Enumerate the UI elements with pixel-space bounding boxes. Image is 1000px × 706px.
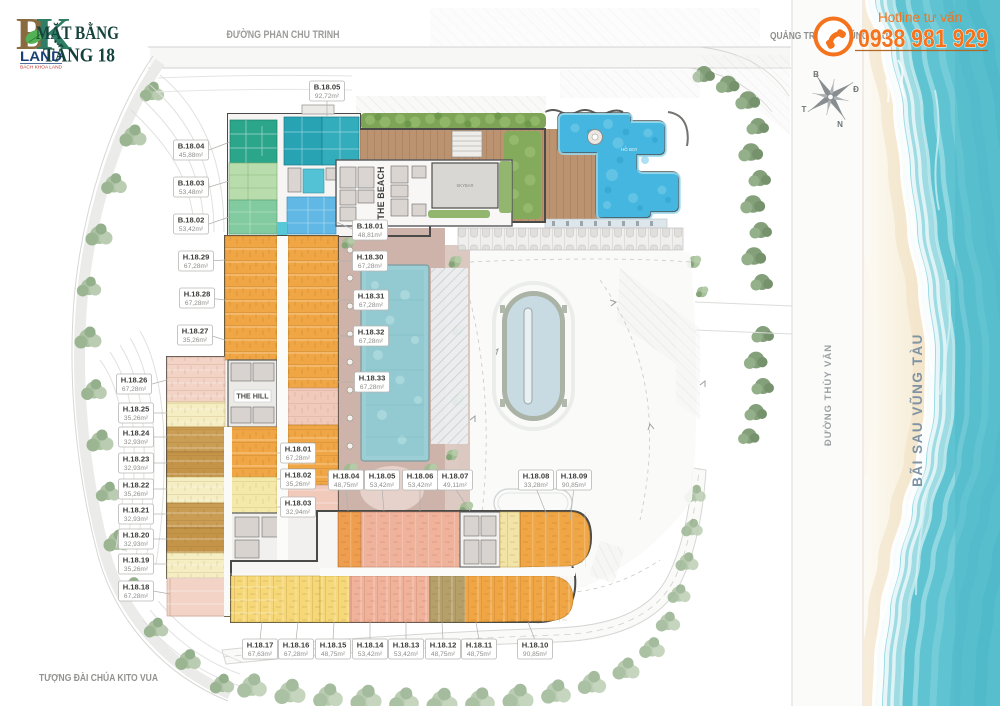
svg-text:32,93m²: 32,93m² xyxy=(124,465,149,472)
svg-text:H.18.17: H.18.17 xyxy=(247,641,274,650)
svg-text:B.18.04: B.18.04 xyxy=(178,142,205,151)
svg-text:H.18.31: H.18.31 xyxy=(358,292,385,301)
svg-text:H.18.13: H.18.13 xyxy=(393,641,420,650)
svg-text:H.18.30: H.18.30 xyxy=(357,253,384,262)
svg-text:32,93m²: 32,93m² xyxy=(124,439,149,446)
svg-text:H.18.26: H.18.26 xyxy=(121,376,148,385)
svg-text:90,85m²: 90,85m² xyxy=(523,651,548,658)
svg-text:48,75m²: 48,75m² xyxy=(431,651,456,658)
svg-text:0938 981 929: 0938 981 929 xyxy=(858,25,988,53)
svg-text:B.18.05: B.18.05 xyxy=(314,83,341,92)
svg-text:67,28m²: 67,28m² xyxy=(358,263,383,270)
svg-text:Đ: Đ xyxy=(853,85,859,94)
svg-text:BÃI SAU VŨNG TÀU: BÃI SAU VŨNG TÀU xyxy=(910,333,925,487)
svg-text:TƯỢNG ĐÀI CHÚA KITO VUA: TƯỢNG ĐÀI CHÚA KITO VUA xyxy=(39,671,158,684)
svg-text:H.18.16: H.18.16 xyxy=(283,641,310,650)
svg-text:32,93m²: 32,93m² xyxy=(124,516,149,523)
svg-text:67,63m²: 67,63m² xyxy=(248,651,273,658)
svg-text:H.18.14: H.18.14 xyxy=(357,641,384,650)
svg-text:35,26m²: 35,26m² xyxy=(124,566,149,573)
svg-text:H.18.10: H.18.10 xyxy=(522,641,549,650)
svg-text:H.18.01: H.18.01 xyxy=(285,445,312,454)
svg-text:H.18.32: H.18.32 xyxy=(358,328,385,337)
svg-text:N: N xyxy=(837,120,843,129)
svg-text:H.18.08: H.18.08 xyxy=(523,472,550,481)
svg-text:H.18.33: H.18.33 xyxy=(359,374,386,383)
svg-text:67,28m²: 67,28m² xyxy=(124,593,149,600)
svg-text:48,75m²: 48,75m² xyxy=(321,651,346,658)
svg-text:B.18.03: B.18.03 xyxy=(178,179,205,188)
svg-text:35,26m²: 35,26m² xyxy=(183,337,208,344)
svg-text:67,28m²: 67,28m² xyxy=(184,263,209,270)
svg-text:48,81m²: 48,81m² xyxy=(358,232,383,239)
svg-text:H.18.25: H.18.25 xyxy=(123,405,150,414)
svg-text:67,28m²: 67,28m² xyxy=(360,384,385,391)
svg-text:49,11m²: 49,11m² xyxy=(443,482,468,489)
svg-text:H.18.23: H.18.23 xyxy=(123,455,150,464)
svg-text:H.18.15: H.18.15 xyxy=(320,641,347,650)
svg-text:90,85m²: 90,85m² xyxy=(562,482,587,489)
svg-text:53,42m²: 53,42m² xyxy=(394,651,419,658)
svg-text:H.18.06: H.18.06 xyxy=(407,472,434,481)
svg-text:32,93m²: 32,93m² xyxy=(124,541,149,548)
svg-text:H.18.05: H.18.05 xyxy=(369,472,396,481)
svg-text:35,26m²: 35,26m² xyxy=(286,481,311,488)
svg-text:Hotline tư vấn: Hotline tư vấn xyxy=(878,10,962,25)
svg-text:MẶT BẰNG: MẶT BẰNG xyxy=(36,22,119,44)
svg-text:33,28m²: 33,28m² xyxy=(524,482,549,489)
svg-text:H.18.22: H.18.22 xyxy=(123,481,150,490)
svg-text:H.18.29: H.18.29 xyxy=(183,253,210,262)
svg-text:ĐƯỜNG PHAN CHU TRINH: ĐƯỜNG PHAN CHU TRINH xyxy=(227,28,340,41)
svg-text:ĐƯỜNG THÙY VÂN: ĐƯỜNG THÙY VÂN xyxy=(822,344,834,446)
svg-text:45,88m²: 45,88m² xyxy=(179,152,204,159)
svg-text:THE BEACH: THE BEACH xyxy=(376,166,386,219)
svg-text:32,94m²: 32,94m² xyxy=(286,509,311,516)
svg-text:T: T xyxy=(802,105,807,114)
svg-text:67,28m²: 67,28m² xyxy=(122,386,147,393)
svg-text:H.18.03: H.18.03 xyxy=(285,499,312,508)
svg-text:H.18.24: H.18.24 xyxy=(123,429,150,438)
svg-text:B: B xyxy=(813,70,819,79)
svg-text:35,26m²: 35,26m² xyxy=(124,415,149,422)
svg-text:HỒ BƠI: HỒ BƠI xyxy=(621,146,637,152)
svg-text:H.18.21: H.18.21 xyxy=(123,506,150,515)
svg-text:TẦNG 18: TẦNG 18 xyxy=(43,43,115,67)
svg-text:H.18.18: H.18.18 xyxy=(123,583,150,592)
svg-text:H.18.27: H.18.27 xyxy=(182,327,209,336)
svg-text:H.18.09: H.18.09 xyxy=(561,472,588,481)
svg-text:H.18.07: H.18.07 xyxy=(442,472,469,481)
svg-text:53,42m²: 53,42m² xyxy=(179,226,204,233)
svg-text:92,72m²: 92,72m² xyxy=(315,93,340,100)
svg-text:THE HILL: THE HILL xyxy=(236,392,269,401)
svg-text:H.18.28: H.18.28 xyxy=(184,290,211,299)
svg-text:H.18.12: H.18.12 xyxy=(430,641,457,650)
svg-text:H.18.11: H.18.11 xyxy=(466,641,493,650)
svg-text:67,28m²: 67,28m² xyxy=(284,651,309,658)
svg-text:48,75m²: 48,75m² xyxy=(467,651,492,658)
svg-text:48,75m²: 48,75m² xyxy=(334,482,359,489)
svg-text:67,28m²: 67,28m² xyxy=(286,455,311,462)
svg-text:H.18.20: H.18.20 xyxy=(123,531,150,540)
svg-text:35,26m²: 35,26m² xyxy=(124,491,149,498)
svg-text:53,42m²: 53,42m² xyxy=(370,482,395,489)
svg-text:B.18.02: B.18.02 xyxy=(178,216,205,225)
svg-text:67,28m²: 67,28m² xyxy=(185,300,210,307)
svg-text:H.18.04: H.18.04 xyxy=(333,472,360,481)
svg-text:67,28m²: 67,28m² xyxy=(359,302,384,309)
svg-text:B.18.01: B.18.01 xyxy=(357,222,384,231)
svg-text:SKYBAR: SKYBAR xyxy=(457,183,474,188)
svg-text:53,42m²: 53,42m² xyxy=(408,482,433,489)
svg-text:53,42m²: 53,42m² xyxy=(358,651,383,658)
svg-text:H.18.02: H.18.02 xyxy=(285,471,312,480)
svg-text:67,28m²: 67,28m² xyxy=(359,338,384,345)
svg-text:53,48m²: 53,48m² xyxy=(179,189,204,196)
svg-text:H.18.19: H.18.19 xyxy=(123,556,150,565)
